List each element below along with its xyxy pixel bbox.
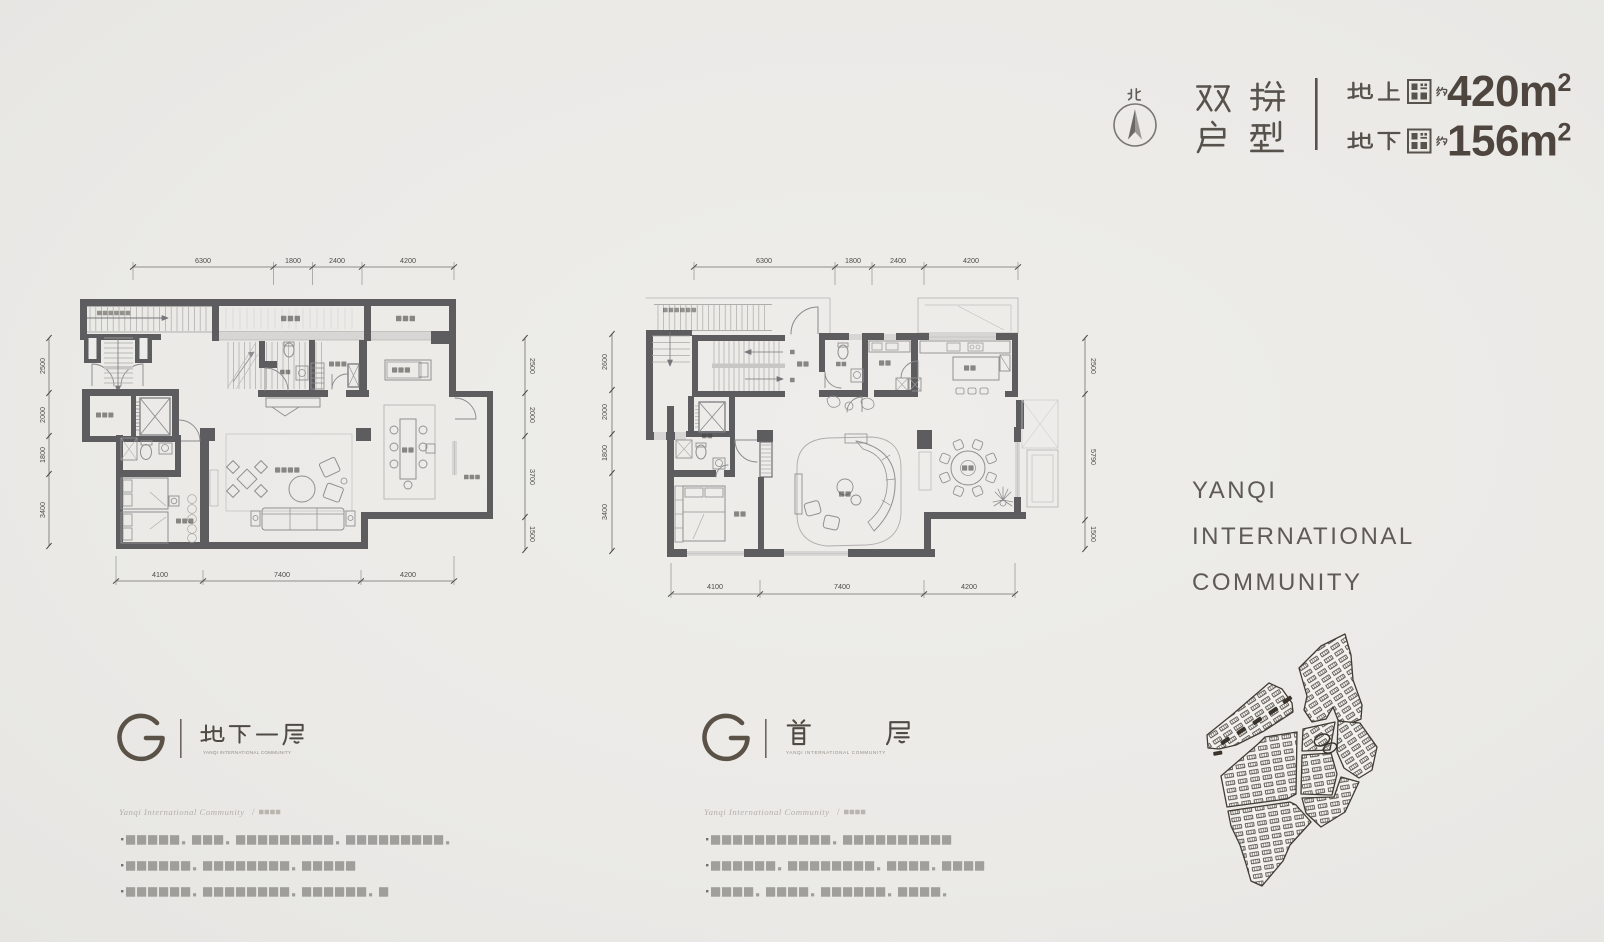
svg-text:/: / [252,807,255,817]
svg-text:2400: 2400 [890,256,906,265]
svg-text:156m2: 156m2 [1447,117,1571,166]
svg-text:YANQI: YANQI [1192,477,1277,504]
svg-text:4200: 4200 [400,256,416,265]
svg-text:1800: 1800 [38,447,47,463]
svg-text:4200: 4200 [961,582,977,591]
svg-text:1800: 1800 [845,256,861,265]
svg-text:COMMUNITY: COMMUNITY [1192,569,1362,596]
svg-text:2000: 2000 [38,407,47,423]
svg-text:1800: 1800 [600,445,609,461]
svg-text:Yanqi International Community: Yanqi International Community [119,807,245,817]
svg-text:3400: 3400 [38,502,47,518]
svg-text:2400: 2400 [329,256,345,265]
svg-text:420m2: 420m2 [1447,67,1571,116]
svg-text:Yanqi International Community: Yanqi International Community [704,807,830,817]
svg-text:2500: 2500 [38,358,47,374]
svg-text:/: / [837,807,840,817]
svg-text:INTERNATIONAL: INTERNATIONAL [1192,523,1415,550]
svg-text:1800: 1800 [285,256,301,265]
svg-text:3400: 3400 [600,504,609,520]
svg-text:6300: 6300 [756,256,772,265]
svg-text:6300: 6300 [195,256,211,265]
svg-text:1500: 1500 [528,526,537,542]
svg-text:2500: 2500 [528,358,537,374]
svg-text:7400: 7400 [834,582,850,591]
svg-text:2600: 2600 [600,354,609,370]
svg-text:4200: 4200 [400,570,416,579]
svg-text:2000: 2000 [528,407,537,423]
svg-text:4200: 4200 [963,256,979,265]
svg-text:4100: 4100 [152,570,168,579]
svg-text:5790: 5790 [1089,449,1098,465]
svg-text:2000: 2000 [600,404,609,420]
svg-text:4100: 4100 [707,582,723,591]
svg-text:YANQI INTERNATIONAL COMMUNITY: YANQI INTERNATIONAL COMMUNITY [203,750,291,755]
svg-text:7400: 7400 [274,570,290,579]
svg-text:1500: 1500 [1089,526,1098,542]
svg-text:2500: 2500 [1089,358,1098,374]
svg-text:YANQI INTERNATIONAL COMMUNITY: YANQI INTERNATIONAL COMMUNITY [786,750,886,755]
svg-text:3700: 3700 [528,469,537,485]
